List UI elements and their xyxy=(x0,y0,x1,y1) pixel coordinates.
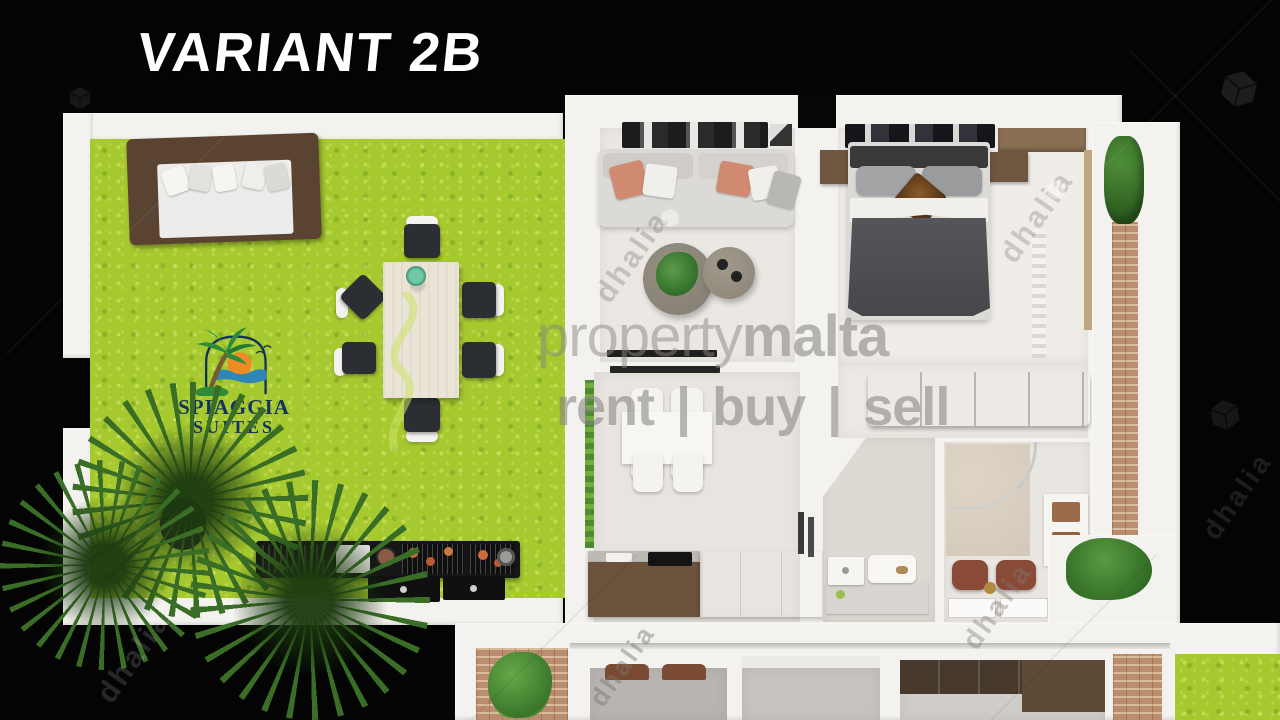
bed xyxy=(848,142,990,320)
nightstand xyxy=(984,152,1028,182)
kitchen-cooktop xyxy=(648,552,692,566)
lower-room-floor xyxy=(742,668,880,720)
dhalia-cube-icon xyxy=(658,206,682,230)
wc-door-track xyxy=(808,517,814,557)
living-wall-art xyxy=(770,124,792,146)
floorplan-render: SPIAGGIA SUITES xyxy=(0,0,1280,720)
variant-title: VARIANT 2B xyxy=(135,20,488,84)
table-cup xyxy=(717,259,728,270)
outdoor-sofa xyxy=(126,133,322,246)
roof-notch xyxy=(798,95,836,128)
wc-soap xyxy=(836,590,845,599)
dhalia-cube-icon xyxy=(1211,61,1267,117)
table-plant xyxy=(406,266,426,286)
band-shadow-line xyxy=(570,643,1170,649)
lower-lawn xyxy=(1175,654,1280,720)
dhalia-cube-icon xyxy=(66,84,94,112)
table-cup xyxy=(731,271,742,282)
bed-duvet xyxy=(848,218,990,316)
dining-chair xyxy=(633,452,663,492)
watermark-brand-light: property xyxy=(537,304,742,369)
outdoor-sofa-pillow xyxy=(212,163,238,192)
patio-chair xyxy=(462,282,496,318)
bbq-cart-handle xyxy=(470,585,477,592)
watermark-tagline: rent | buy | sell xyxy=(556,380,949,434)
watermark-dhalia: dhalia xyxy=(1196,446,1279,545)
bbq-side-dial xyxy=(497,548,515,566)
dhalia-cube-icon xyxy=(1203,393,1247,437)
bbq-food xyxy=(444,547,453,556)
dining-chair xyxy=(673,452,703,492)
watermark-brand-bold: malta xyxy=(742,304,889,369)
watermark-propertymalta: propertymalta xyxy=(537,308,888,366)
bbq-food xyxy=(426,557,435,566)
sofa-pillow-white xyxy=(642,163,678,199)
bedroom-wardrobe-top xyxy=(998,128,1086,152)
wc-toilet xyxy=(868,555,916,583)
lower-kitchen-counter-return xyxy=(1022,660,1105,712)
bed-headboard xyxy=(850,146,988,168)
bbq-cart-box xyxy=(443,576,505,600)
side-yard-path xyxy=(1112,222,1138,544)
washer-door xyxy=(842,567,849,574)
lower-brick-path xyxy=(1113,654,1162,720)
living-shelf-unit xyxy=(622,122,768,148)
wc-door-track xyxy=(798,512,804,554)
grass-squiggle-watermark xyxy=(368,292,438,452)
terrace-left-wall xyxy=(63,113,93,358)
coffee-table-small xyxy=(703,247,755,299)
shelf-basket xyxy=(1052,502,1080,522)
lower-kitchen-counter xyxy=(900,660,1022,694)
vanity-stool xyxy=(952,560,988,590)
dhalia-cube-icon xyxy=(1044,178,1068,202)
patio-chair xyxy=(404,224,440,258)
side-yard-plant xyxy=(1104,136,1144,224)
bbq-food xyxy=(478,550,488,560)
kitchen-counter-light xyxy=(700,551,828,617)
wc-accessory xyxy=(896,566,908,574)
patio-chair xyxy=(462,342,496,378)
lower-room-chair xyxy=(662,664,706,680)
living-sofa xyxy=(598,149,794,227)
wc-washer xyxy=(828,557,864,585)
